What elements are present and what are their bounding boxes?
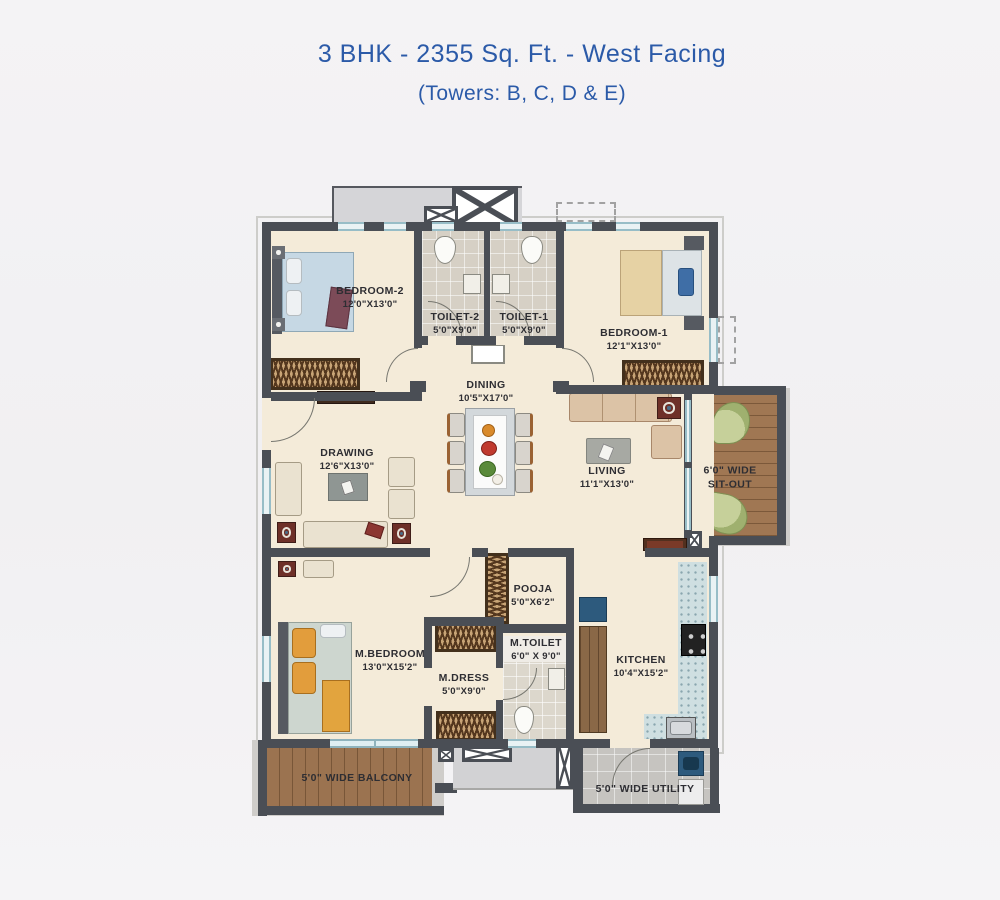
wall-segment (414, 222, 422, 348)
room-name: 5'0" WIDE UTILITY (596, 783, 695, 797)
wall-segment (496, 624, 574, 633)
pillow-icon (292, 628, 316, 658)
room-name: DRAWING (320, 447, 375, 461)
wall-segment (556, 385, 718, 394)
wall-segment (710, 748, 719, 808)
room-label-toilet2: TOILET-2 5'0"X9'0" (430, 311, 479, 337)
window-icon (262, 636, 271, 682)
wall-segment (424, 706, 432, 748)
room-label-mdress: M.DRESS 5'0"X9'0" (439, 672, 490, 698)
nightstand-icon (684, 316, 704, 330)
duct-box (556, 743, 573, 789)
bed-headboard (278, 622, 288, 734)
wall-segment (556, 222, 564, 348)
window-icon (616, 222, 640, 231)
toilet-sink-icon (463, 274, 481, 294)
kitchen-counter-blue (579, 597, 607, 622)
wall-segment (424, 617, 432, 668)
door-opening (262, 398, 271, 450)
room-dims: 5'0"X9'0" (499, 325, 548, 337)
wardrobe-icon (270, 358, 360, 390)
duct-box (462, 746, 512, 762)
fridge-cabinet-icon (579, 626, 607, 733)
room-label-mbedroom: M.BEDROOM 13'0"X15'2" (355, 648, 425, 674)
room-name: SIT-OUT (703, 478, 756, 492)
wall-segment (262, 222, 718, 231)
room-label-sitout: 6'0" WIDE SIT-OUT (703, 464, 756, 491)
wardrobe-icon (436, 711, 497, 741)
window-icon (338, 222, 364, 231)
room-name: POOJA (511, 583, 555, 597)
food-plate-icon (482, 424, 495, 437)
room-label-bedroom1: BEDROOM-1 12'1"X13'0" (600, 327, 668, 353)
room-label-balcony: 5'0" WIDE BALCONY (301, 772, 412, 786)
room-name: M.BEDROOM (355, 648, 425, 662)
chair-icon (447, 469, 465, 493)
ac-ledge-dashed (718, 316, 736, 364)
sliding-door-icon (330, 739, 418, 748)
sofa-icon (275, 462, 302, 516)
room-dims: 11'1"X13'0" (580, 479, 634, 491)
room-label-living: LIVING 11'1"X13'0" (580, 465, 634, 491)
room-label-kitchen: KITCHEN 10'4"X15'2" (614, 654, 669, 680)
armchair-icon (303, 560, 334, 578)
room-dims: 5'0"X9'0" (430, 325, 479, 337)
wall-segment (645, 548, 718, 557)
chair-icon (515, 441, 533, 465)
room-name: TOILET-2 (430, 311, 479, 325)
side-table-icon (277, 522, 296, 543)
pillow-icon (320, 624, 346, 638)
toilet-sink-icon (548, 668, 565, 690)
pillow-icon (286, 258, 302, 284)
room-name: 5'0" WIDE BALCONY (301, 772, 412, 786)
window-icon (262, 468, 271, 514)
room-name: M.DRESS (439, 672, 490, 686)
wall-segment (484, 222, 490, 340)
window-icon (500, 222, 522, 231)
room-label-drawing: DRAWING 12'6"X13'0" (320, 447, 375, 473)
window-icon (709, 576, 718, 622)
room-label-mtoilet: M.TOILET 6'0" X 9'0" (510, 637, 562, 663)
wall-segment (566, 548, 574, 748)
wall-segment (573, 743, 583, 806)
glass-door-icon (685, 400, 691, 462)
wall-segment (258, 740, 267, 816)
room-label-utility: 5'0" WIDE UTILITY (596, 783, 695, 797)
pillow-icon (286, 290, 302, 316)
wardrobe-icon (485, 553, 509, 624)
chair-icon (447, 441, 465, 465)
wall-segment (262, 548, 430, 557)
wardrobe-icon (622, 360, 704, 388)
wall-segment (709, 536, 718, 748)
room-label-dining: DINING 10'5"X17'0" (459, 379, 514, 405)
glass-door-icon (685, 468, 691, 530)
wall-light-icon (272, 318, 285, 331)
room-name: DINING (459, 379, 514, 393)
room-dims: 5'0"X6'2" (511, 597, 555, 609)
side-table-icon (392, 523, 411, 544)
room-label-bedroom2: BEDROOM-2 12'0"X13'0" (336, 285, 404, 311)
room-name: BEDROOM-1 (600, 327, 668, 341)
window-icon (384, 222, 406, 231)
wall-segment (496, 700, 503, 748)
room-dims: 6'0" X 9'0" (510, 651, 562, 663)
sofa-icon (388, 457, 415, 487)
window-icon (709, 318, 718, 362)
food-plate-icon (481, 441, 497, 456)
washing-machine-icon (678, 751, 704, 776)
chair-icon (447, 413, 465, 437)
rug-icon (586, 438, 631, 464)
wall-segment (472, 548, 488, 557)
wall-segment (777, 386, 786, 545)
room-name: TOILET-1 (499, 311, 548, 325)
room-dims: 12'1"X13'0" (600, 341, 668, 353)
wall-segment (496, 624, 503, 668)
wall-light-icon (272, 246, 285, 259)
room-dims: 13'0"X15'2" (355, 662, 425, 674)
food-plate-icon (492, 474, 503, 485)
duct-box (438, 748, 454, 762)
room-dims: 10'5"X17'0" (459, 393, 514, 405)
window-icon (508, 739, 536, 748)
wall-segment (573, 804, 720, 813)
sofa-icon (388, 489, 415, 519)
armchair-icon (651, 425, 682, 459)
wall-segment (410, 381, 426, 392)
room-name: 6'0" WIDE (703, 464, 756, 478)
wall-segment (258, 806, 444, 815)
open-area-dashed (556, 202, 616, 222)
room-name: LIVING (580, 465, 634, 479)
floor-plan: BEDROOM-2 12'0"X13'0" TOILET-2 5'0"X9'0"… (0, 0, 1000, 900)
center-table (328, 473, 368, 501)
room-dims: 12'0"X13'0" (336, 299, 404, 311)
chair-icon (515, 469, 533, 493)
door-opening (496, 336, 524, 345)
pillow-icon (678, 268, 694, 296)
toilet-sink-icon (492, 274, 510, 294)
room-label-toilet1: TOILET-1 5'0"X9'0" (499, 311, 548, 337)
room-name: KITCHEN (614, 654, 669, 668)
wall-segment (709, 222, 718, 394)
door-opening (610, 739, 650, 748)
wall-segment (424, 617, 504, 626)
pillow-icon (292, 662, 316, 694)
window-icon (432, 222, 454, 231)
room-dims: 12'6"X13'0" (320, 461, 375, 473)
side-table-icon (278, 561, 296, 577)
nightstand-icon (684, 236, 704, 250)
wall-segment (508, 548, 574, 557)
chair-icon (515, 413, 533, 437)
stove-icon (681, 624, 706, 656)
room-dims: 5'0"X9'0" (439, 686, 490, 698)
room-name: M.TOILET (510, 637, 562, 651)
door-opening (428, 336, 456, 345)
kitchen-sink-icon (666, 717, 696, 739)
room-name: BEDROOM-2 (336, 285, 404, 299)
room-label-pooja: POOJA 5'0"X6'2" (511, 583, 555, 609)
window-icon (566, 222, 592, 231)
bed-throw (322, 680, 350, 732)
wall-decor-icon (657, 397, 681, 419)
floor-plan-page: 3 BHK - 2355 Sq. Ft. - West Facing (Towe… (0, 0, 1000, 900)
room-dims: 10'4"X15'2" (614, 668, 669, 680)
wash-basin (471, 344, 505, 364)
bed-icon (620, 250, 662, 316)
